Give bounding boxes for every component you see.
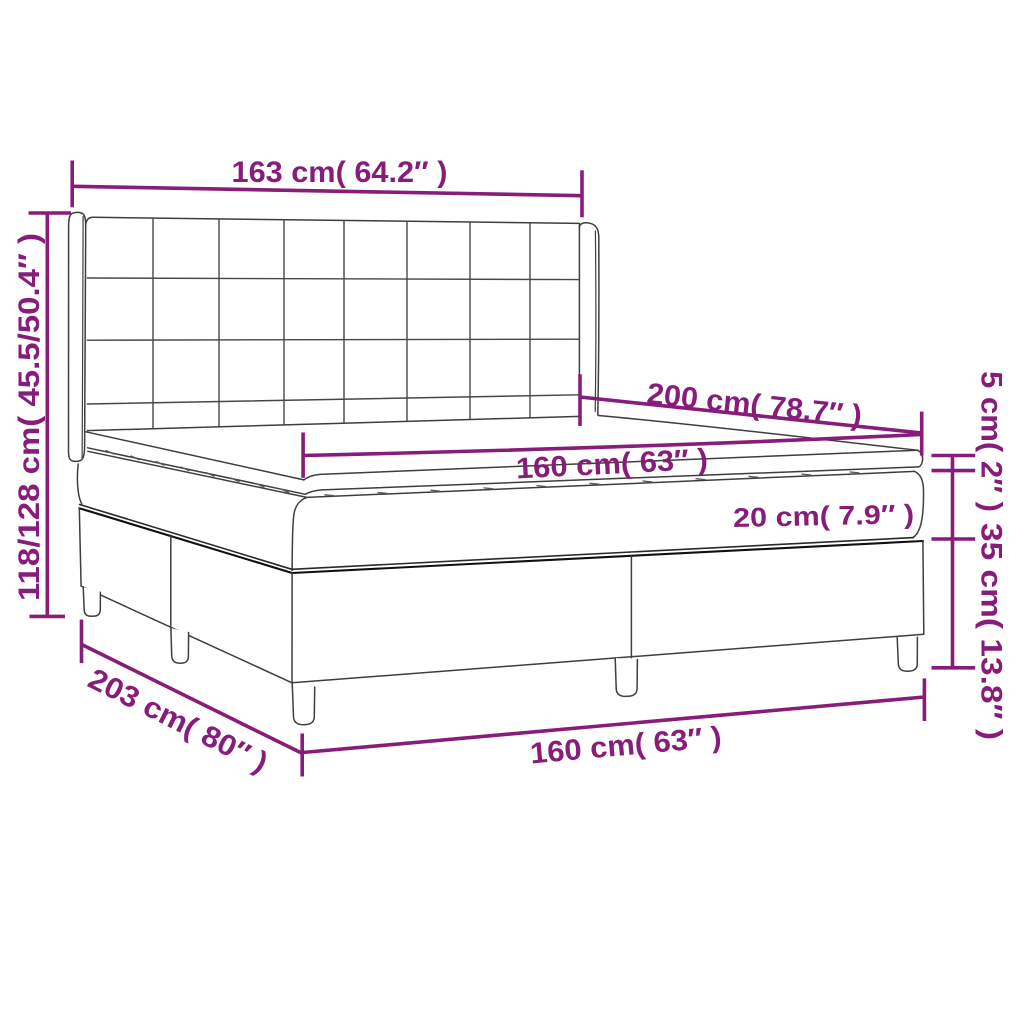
svg-text:20 cm( 7.9″ ): 20 cm( 7.9″ ): [733, 499, 915, 533]
svg-text:163 cm( 64.2″ ): 163 cm( 64.2″ ): [232, 156, 448, 189]
svg-text:118/128 cm( 45.5/50.4″ ): 118/128 cm( 45.5/50.4″ ): [13, 233, 46, 601]
svg-text:5 cm( 2″ ): 5 cm( 2″ ): [975, 371, 1008, 512]
svg-text:35 cm( 13.8″ ): 35 cm( 13.8″ ): [975, 523, 1008, 740]
